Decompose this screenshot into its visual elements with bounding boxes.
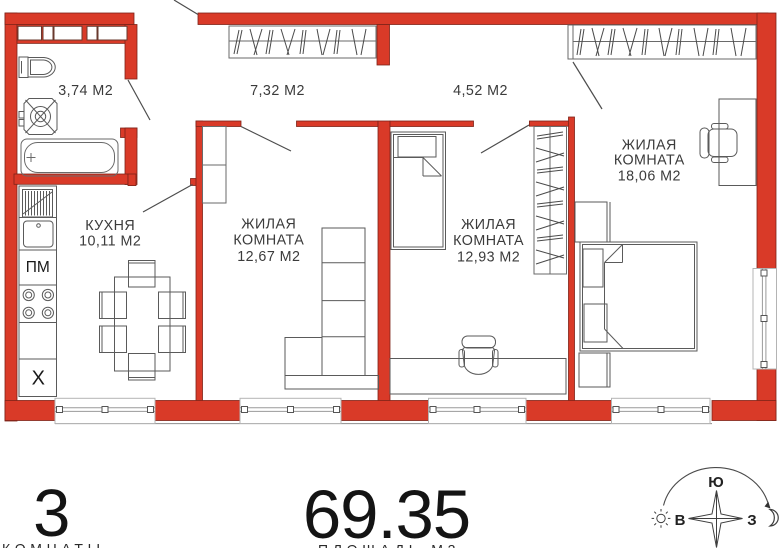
svg-text:ПЛОЩАДЬ М2: ПЛОЩАДЬ М2 [318, 541, 460, 548]
svg-text:ЖИЛАЯ: ЖИЛАЯ [241, 217, 296, 233]
svg-text:12,93 М2: 12,93 М2 [457, 250, 520, 266]
svg-text:12,67 М2: 12,67 М2 [237, 249, 300, 265]
svg-text:Х: Х [32, 368, 45, 390]
svg-text:10,11 М2: 10,11 М2 [79, 234, 141, 250]
svg-text:КОМНАТЫ: КОМНАТЫ [2, 541, 105, 548]
svg-text:З: З [747, 512, 756, 529]
svg-text:ПМ: ПМ [26, 259, 50, 276]
svg-text:КУХНЯ: КУХНЯ [85, 218, 135, 234]
svg-text:ЖИЛАЯ: ЖИЛАЯ [622, 137, 677, 153]
svg-text:В: В [675, 512, 686, 529]
svg-text:ЖИЛАЯ: ЖИЛАЯ [461, 217, 516, 233]
svg-text:КОМНАТА: КОМНАТА [233, 233, 304, 249]
svg-text:3,74 М2: 3,74 М2 [58, 83, 113, 99]
svg-text:18,06 М2: 18,06 М2 [618, 168, 681, 184]
svg-text:69.35: 69.35 [303, 476, 470, 548]
svg-text:Ю: Ю [708, 474, 723, 491]
svg-text:7,32 М2: 7,32 М2 [250, 83, 305, 99]
svg-text:4,52 М2: 4,52 М2 [453, 83, 508, 99]
svg-text:3: 3 [33, 476, 70, 548]
svg-text:КОМНАТА: КОМНАТА [614, 153, 685, 169]
svg-text:КОМНАТА: КОМНАТА [453, 233, 524, 249]
